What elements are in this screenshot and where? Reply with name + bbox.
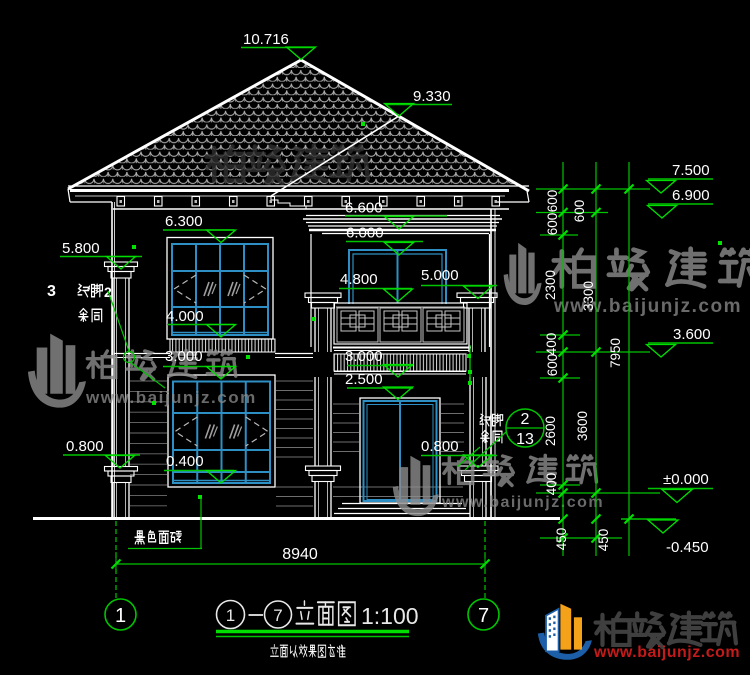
svg-text:10.716: 10.716	[243, 31, 289, 48]
svg-text:600: 600	[545, 354, 560, 377]
svg-text:0.800: 0.800	[421, 438, 459, 455]
svg-text:6.900: 6.900	[672, 187, 710, 204]
svg-text:1: 1	[115, 605, 126, 627]
svg-text:-0.450: -0.450	[666, 539, 709, 556]
svg-text:450: 450	[554, 528, 569, 551]
svg-text:±0.000: ±0.000	[663, 471, 709, 488]
svg-text:8940: 8940	[282, 546, 318, 563]
svg-text:3: 3	[47, 283, 56, 300]
svg-text:13: 13	[516, 431, 534, 448]
svg-text:2300: 2300	[543, 270, 558, 300]
svg-text:400: 400	[544, 333, 559, 356]
svg-text:www.baijunjz.com: www.baijunjz.com	[85, 388, 257, 407]
svg-text:600: 600	[572, 200, 587, 223]
svg-text:5.800: 5.800	[62, 240, 100, 257]
svg-text:0.800: 0.800	[66, 438, 104, 455]
svg-text:6.600: 6.600	[345, 200, 383, 217]
svg-text:7950: 7950	[608, 338, 623, 368]
svg-text:www.baijunjz.com: www.baijunjz.com	[441, 494, 604, 511]
svg-text:7: 7	[273, 606, 282, 625]
svg-text:3.000: 3.000	[345, 348, 383, 365]
svg-text:7.500: 7.500	[672, 162, 710, 179]
svg-text:6.000: 6.000	[346, 225, 384, 242]
svg-text:3.600: 3.600	[673, 326, 711, 343]
svg-text:2: 2	[521, 411, 530, 428]
svg-text:400: 400	[544, 473, 559, 496]
svg-text:4.000: 4.000	[166, 308, 204, 325]
svg-text:1: 1	[226, 606, 235, 625]
svg-text:600: 600	[545, 190, 560, 213]
svg-text:3.000: 3.000	[165, 348, 203, 365]
svg-text:3300: 3300	[581, 281, 596, 311]
svg-text:4.800: 4.800	[340, 271, 378, 288]
svg-text:3600: 3600	[575, 411, 590, 441]
svg-text:7: 7	[478, 605, 489, 627]
svg-text:www.baijunjz.com: www.baijunjz.com	[593, 644, 740, 661]
svg-text:9.330: 9.330	[413, 88, 451, 105]
svg-text:2600: 2600	[543, 416, 558, 446]
svg-text:2.500: 2.500	[345, 371, 383, 388]
svg-text:450: 450	[596, 529, 611, 552]
svg-text:6.300: 6.300	[165, 213, 203, 230]
svg-text:1:100: 1:100	[361, 603, 419, 629]
svg-text:0.400: 0.400	[166, 453, 204, 470]
svg-text:600: 600	[545, 213, 560, 236]
svg-text:5.000: 5.000	[421, 267, 459, 284]
